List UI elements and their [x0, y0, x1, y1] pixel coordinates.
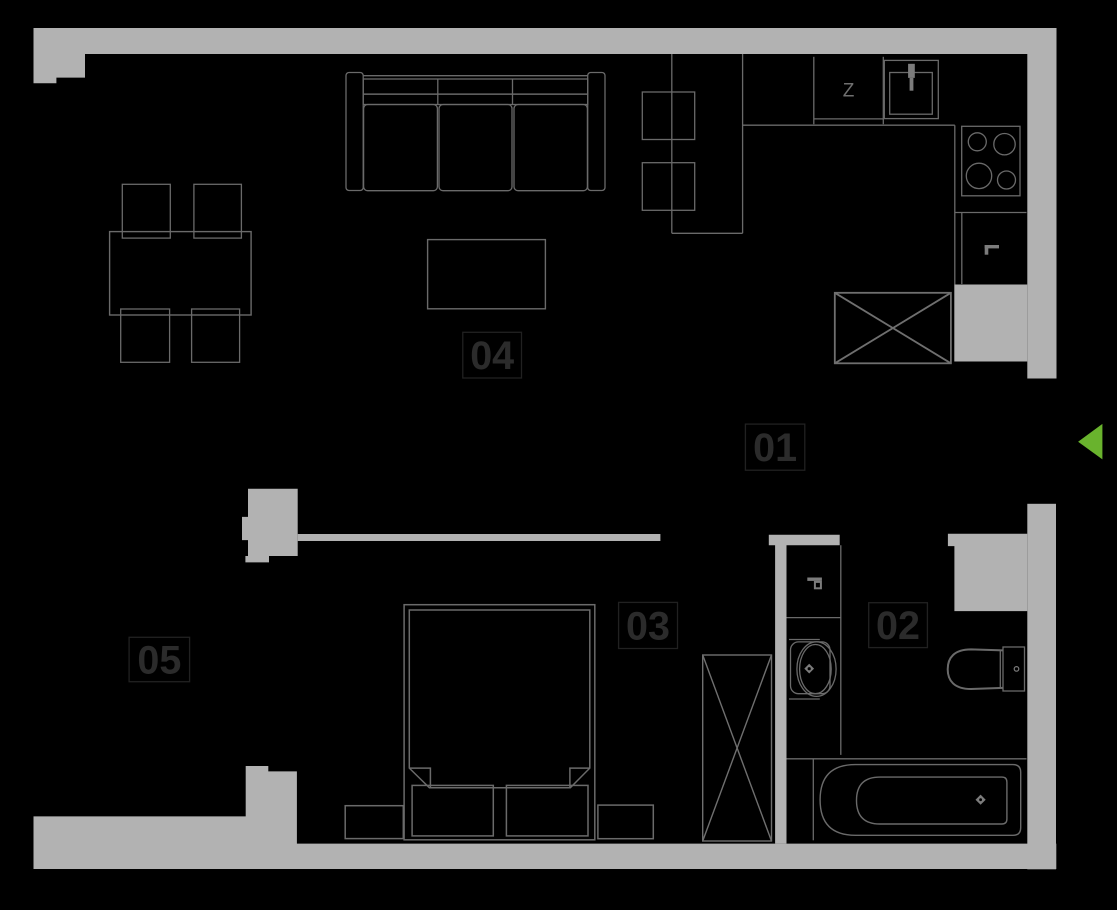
svg-text:04: 04 [470, 334, 514, 378]
svg-text:Z: Z [843, 81, 855, 102]
svg-text:05: 05 [137, 639, 181, 683]
svg-text:02: 02 [876, 604, 920, 648]
svg-text:03: 03 [626, 604, 670, 648]
svg-text:01: 01 [753, 426, 797, 470]
